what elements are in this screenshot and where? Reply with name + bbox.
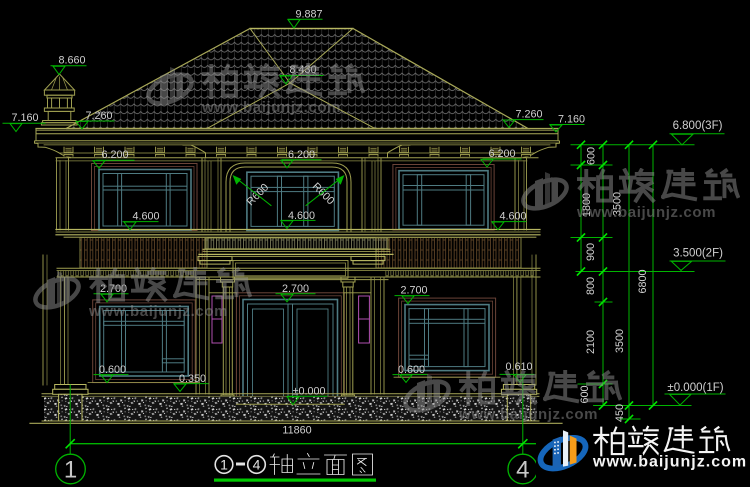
svg-text:4.600: 4.600 xyxy=(499,211,526,223)
svg-text:0.610: 0.610 xyxy=(505,361,532,373)
svg-text:6.200: 6.200 xyxy=(488,148,515,160)
svg-text:8.660: 8.660 xyxy=(58,55,85,67)
svg-text:3500: 3500 xyxy=(614,329,626,353)
svg-text:7.160: 7.160 xyxy=(558,114,585,126)
svg-text:7.160: 7.160 xyxy=(11,112,38,124)
svg-text:900: 900 xyxy=(585,243,597,261)
svg-text:2.700: 2.700 xyxy=(282,283,309,295)
svg-text:4.600: 4.600 xyxy=(132,211,159,223)
svg-text:6.800(3F): 6.800(3F) xyxy=(673,120,723,132)
svg-text:±0.000: ±0.000 xyxy=(293,386,326,398)
svg-text:6.200: 6.200 xyxy=(101,149,128,161)
svg-text:800: 800 xyxy=(585,277,597,295)
svg-text:7.260: 7.260 xyxy=(85,110,112,122)
svg-text:7.260: 7.260 xyxy=(515,109,542,121)
svg-text:1: 1 xyxy=(64,457,77,484)
svg-text:600: 600 xyxy=(586,147,598,165)
svg-text:6.200: 6.200 xyxy=(288,149,315,161)
svg-text:2.700: 2.700 xyxy=(400,285,427,297)
svg-text:1: 1 xyxy=(220,457,228,473)
svg-text:3.500(2F): 3.500(2F) xyxy=(673,247,723,259)
svg-text:450: 450 xyxy=(614,404,626,422)
svg-text:2100: 2100 xyxy=(585,330,597,354)
svg-text:±0.000(1F): ±0.000(1F) xyxy=(667,382,723,394)
svg-text:www.baijunjz.com: www.baijunjz.com xyxy=(592,454,747,471)
svg-text:4: 4 xyxy=(516,457,529,484)
svg-text:4: 4 xyxy=(253,457,261,473)
svg-text:11860: 11860 xyxy=(282,425,311,437)
svg-text:6800: 6800 xyxy=(637,269,649,293)
